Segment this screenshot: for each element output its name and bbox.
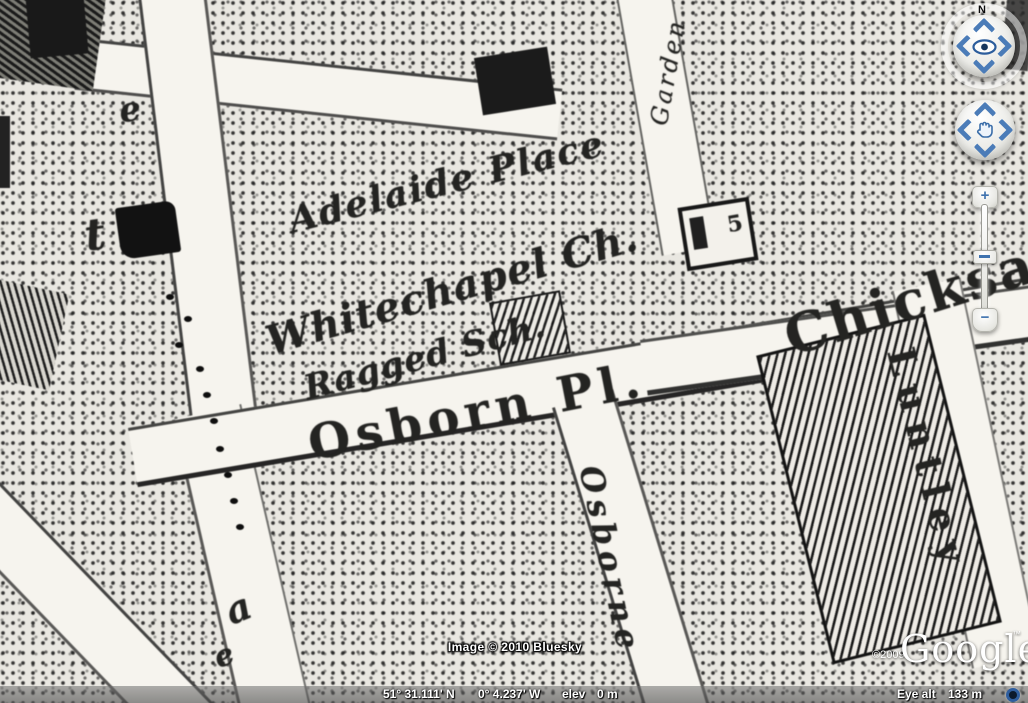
boundary-dot xyxy=(210,418,218,424)
building-block xyxy=(0,116,10,188)
look-up-arrow[interactable] xyxy=(973,18,996,41)
eye-altitude-label: Eye alt xyxy=(897,686,936,703)
building-block xyxy=(25,0,88,58)
building-block xyxy=(0,280,69,391)
zoom-slider-thumb[interactable] xyxy=(973,250,997,264)
building-block xyxy=(474,47,556,116)
boundary-dot xyxy=(196,366,204,372)
map-label-adelaide-place: Adelaide Place xyxy=(285,122,610,241)
trademark-symbol: ™ xyxy=(1012,629,1021,639)
look-down-arrow[interactable] xyxy=(973,52,996,75)
status-bar: 51° 31.111' N 0° 4.237' W elev 0 m Eye a… xyxy=(0,686,1028,703)
boundary-dot xyxy=(203,392,211,398)
streaming-indicator-icon xyxy=(1006,688,1020,702)
boundary-dot xyxy=(230,498,238,504)
map-canvas[interactable]: Adelaide Place Whitechapel Ch. Ragged Sc… xyxy=(0,0,1028,703)
boundary-dot xyxy=(224,472,232,478)
elevation-label: elev xyxy=(562,686,585,703)
longitude-readout: 0° 4.237' W xyxy=(478,686,540,703)
zoom-thumb-dash xyxy=(979,255,990,258)
zoom-out-button[interactable]: − xyxy=(972,308,998,332)
building-block xyxy=(115,200,182,260)
imagery-attribution: Image © 2010 Bluesky xyxy=(419,640,611,654)
eye-altitude-readout: 133 m xyxy=(948,686,982,703)
eye-icon[interactable] xyxy=(972,39,997,55)
street-osborne xyxy=(552,389,711,703)
google-wordmark: Google xyxy=(900,627,1028,671)
google-earth-window: Adelaide Place Whitechapel Ch. Ragged Sc… xyxy=(0,0,1028,703)
boundary-dot xyxy=(236,524,244,530)
latitude-readout: 51° 31.111' N xyxy=(383,686,455,703)
boundary-dot xyxy=(216,446,224,452)
elevation-readout: 0 m xyxy=(597,686,618,703)
boundary-dot xyxy=(166,294,174,300)
hand-icon[interactable] xyxy=(975,120,995,140)
look-joystick[interactable] xyxy=(953,15,1015,77)
building-outline xyxy=(677,197,758,271)
move-joystick[interactable] xyxy=(955,100,1015,160)
boundary-dot xyxy=(184,316,192,322)
boundary-dot xyxy=(175,342,183,348)
building-block xyxy=(689,216,708,250)
zoom-slider: + − xyxy=(970,186,998,334)
map-label-letter: t xyxy=(81,208,108,261)
